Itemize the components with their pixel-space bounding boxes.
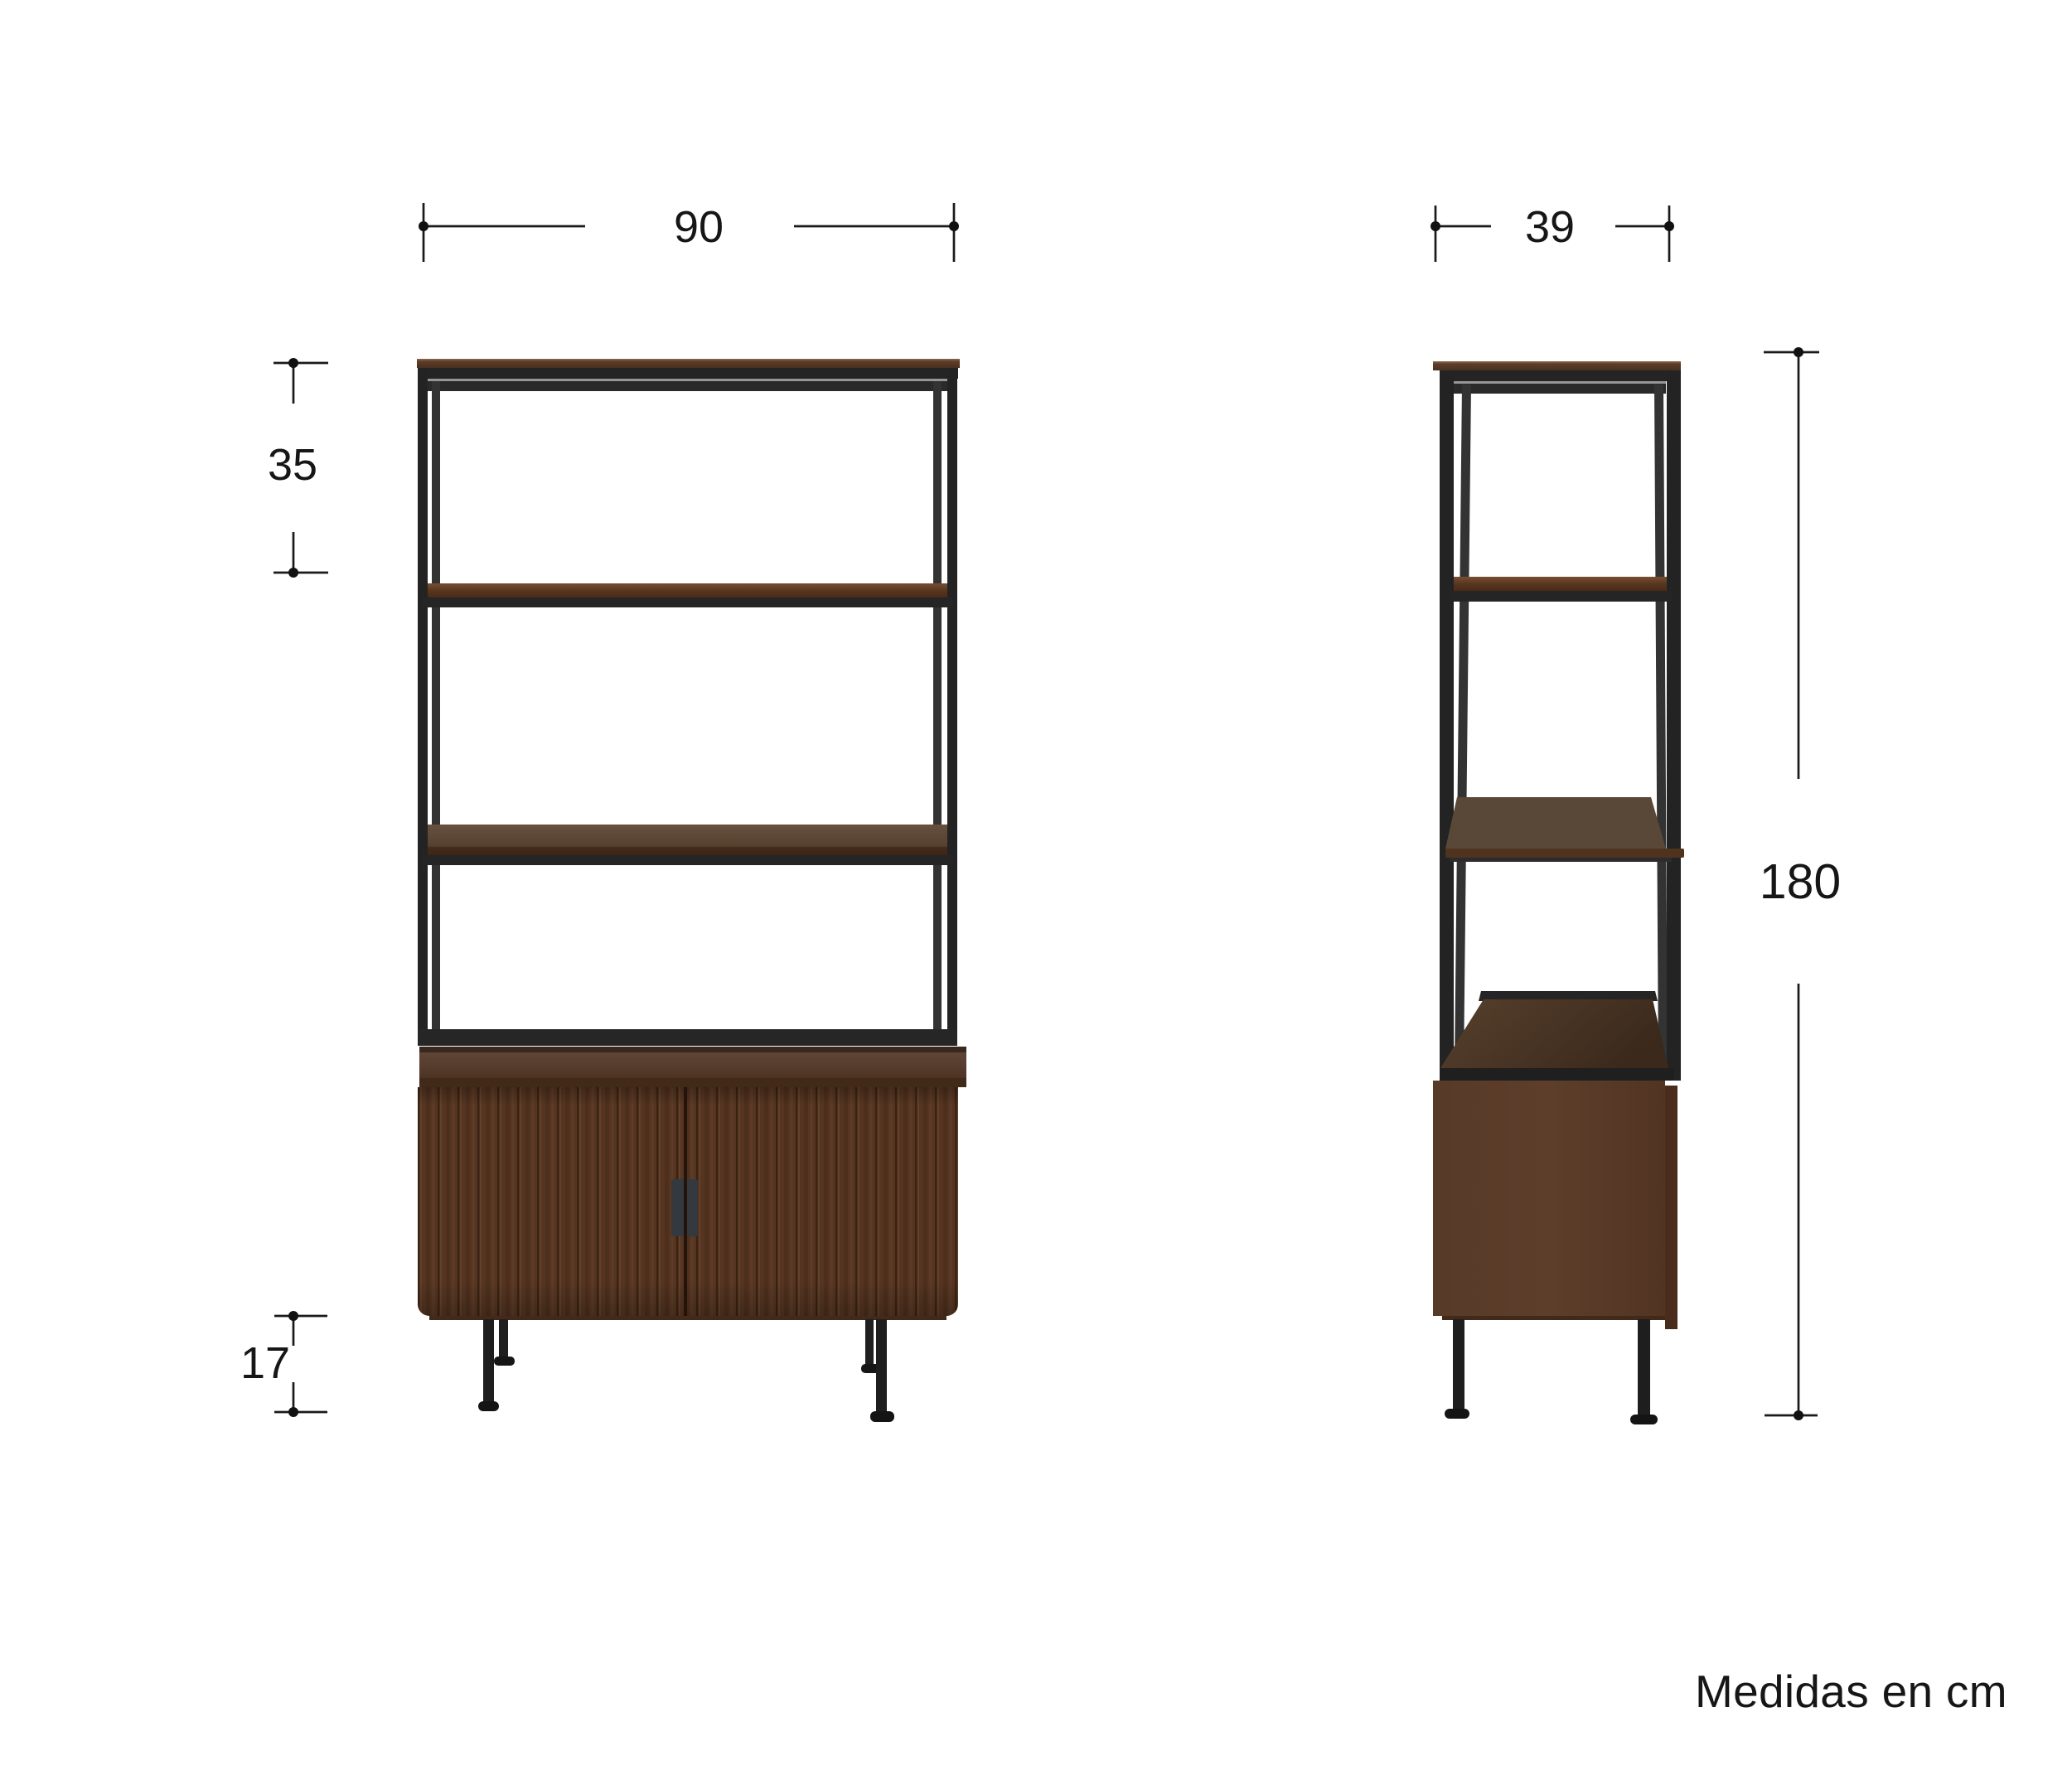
svg-text:90: 90: [674, 202, 724, 252]
svg-text:Medidas en cm: Medidas en cm: [1695, 1666, 2007, 1717]
svg-text:17: 17: [240, 1338, 290, 1388]
svg-text:180: 180: [1760, 854, 1841, 909]
svg-text:39: 39: [1525, 202, 1575, 252]
svg-text:35: 35: [268, 440, 317, 490]
